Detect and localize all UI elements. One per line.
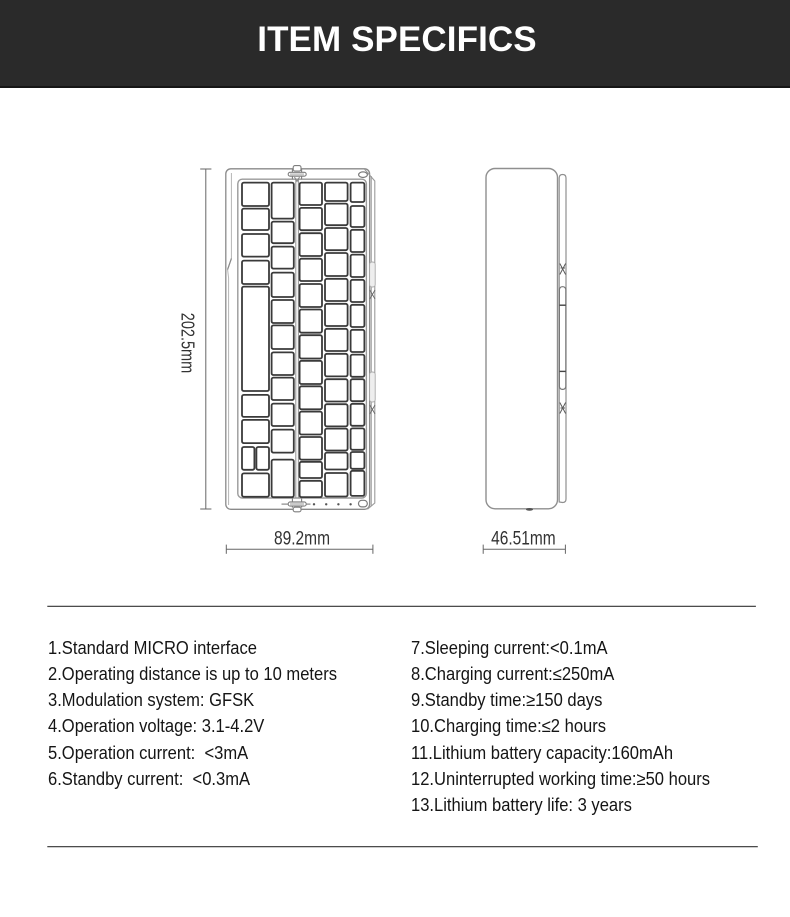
svg-text:46.51mm: 46.51mm — [491, 528, 556, 549]
svg-text:202.5mm: 202.5mm — [177, 313, 197, 374]
svg-text:89.2mm: 89.2mm — [274, 528, 330, 549]
